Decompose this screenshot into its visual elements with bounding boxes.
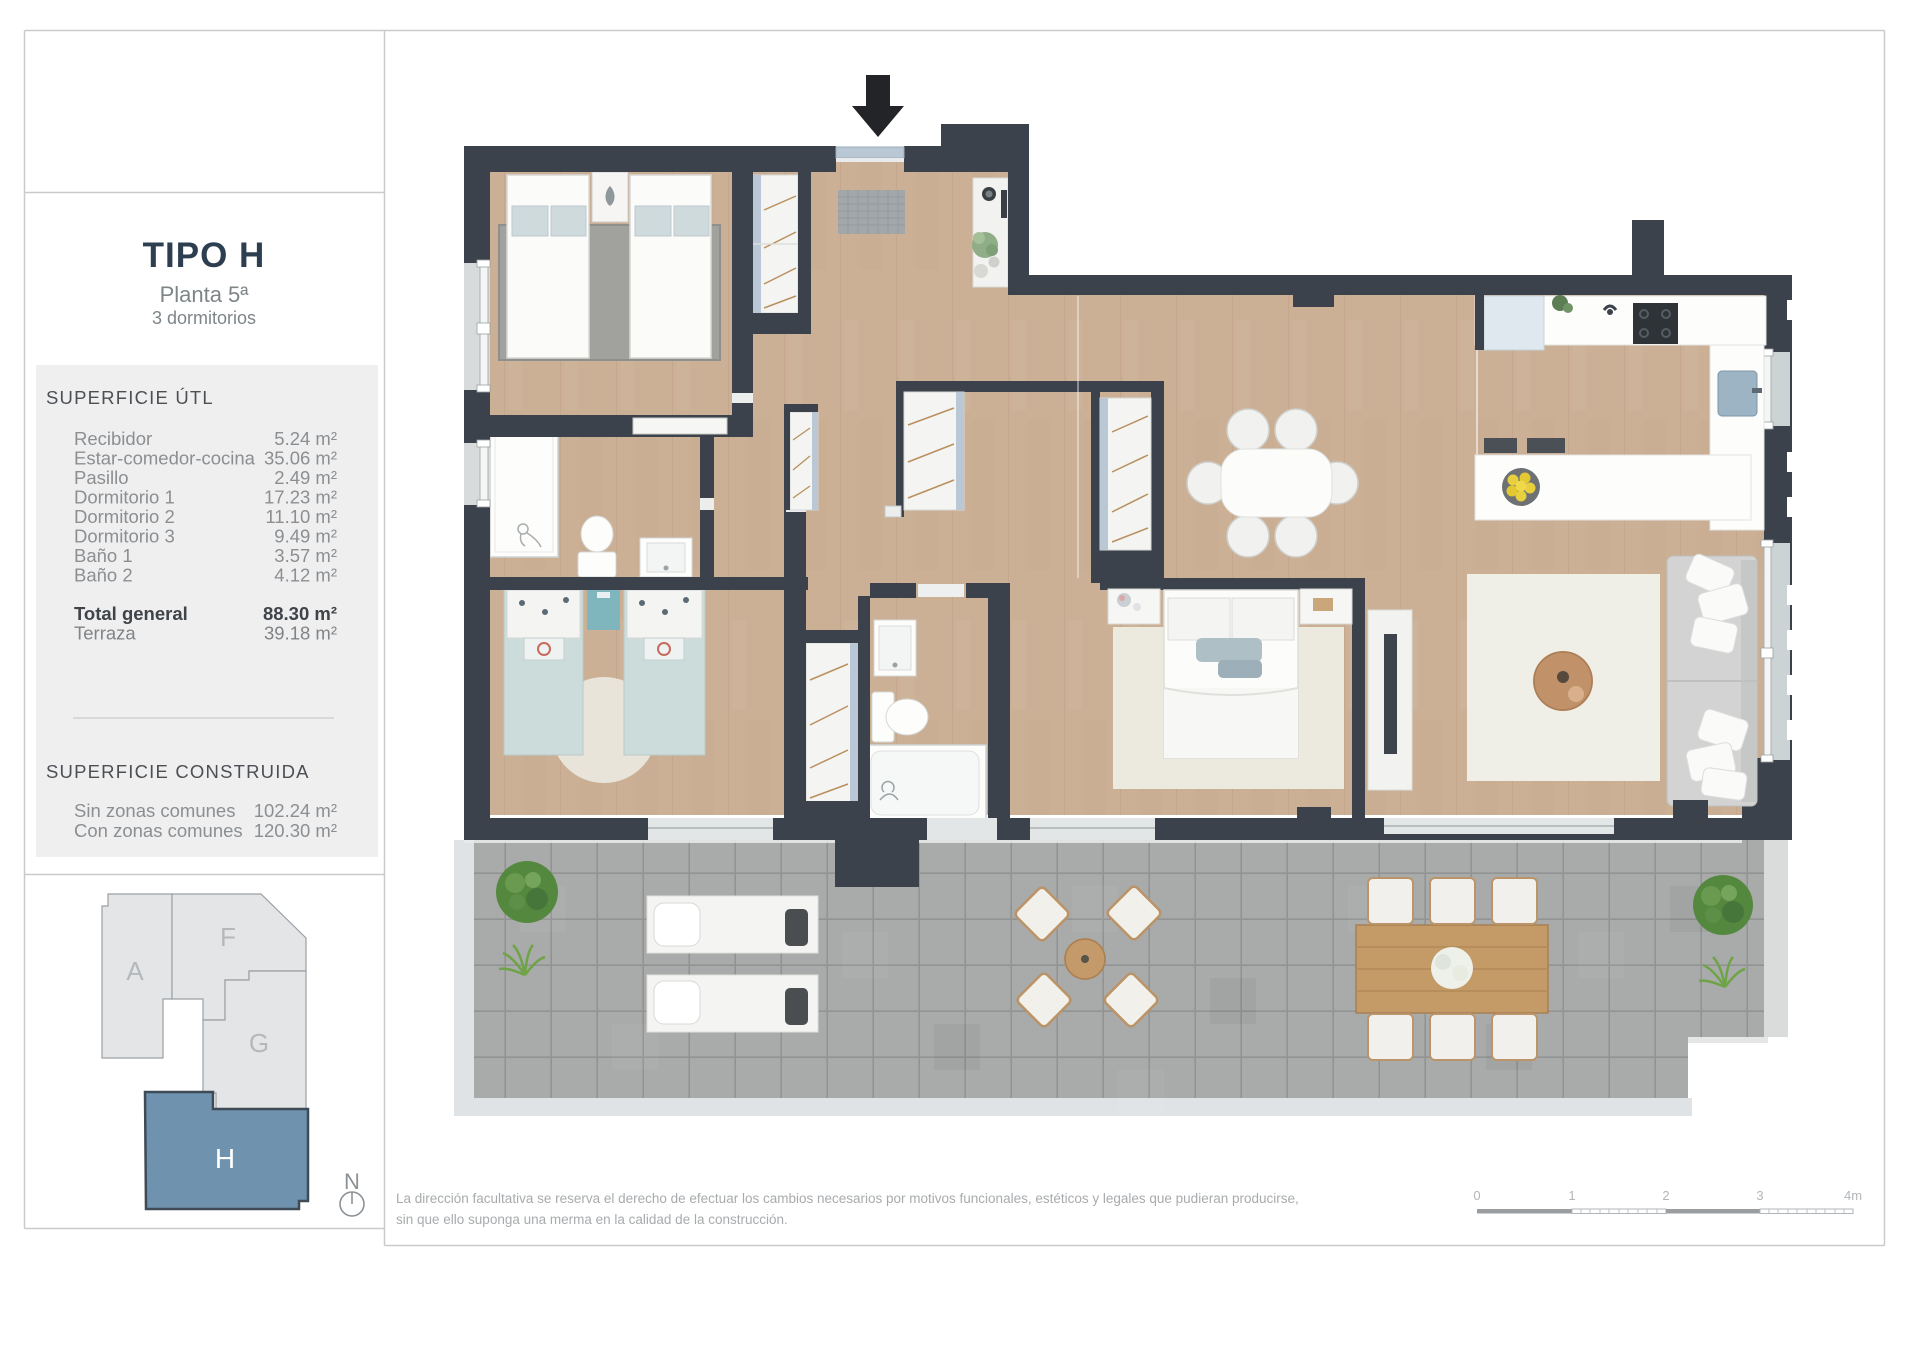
svg-text:4.12 m²: 4.12 m² [274, 565, 337, 586]
svg-text:F: F [220, 922, 236, 952]
svg-text:35.06 m²: 35.06 m² [264, 448, 337, 469]
svg-text:Pasillo: Pasillo [74, 467, 129, 488]
svg-text:3.57 m²: 3.57 m² [274, 545, 337, 566]
svg-text:17.23 m²: 17.23 m² [264, 487, 337, 508]
svg-text:SUPERFICIE ÚTL: SUPERFICIE ÚTL [46, 387, 214, 408]
svg-text:sin que ello suponga una merma: sin que ello suponga una merma en la cal… [396, 1212, 788, 1227]
svg-text:Estar-comedor-cocina: Estar-comedor-cocina [74, 448, 256, 469]
svg-text:120.30 m²: 120.30 m² [254, 820, 337, 841]
svg-text:Terraza: Terraza [74, 623, 136, 644]
svg-text:88.30 m²: 88.30 m² [263, 603, 337, 624]
svg-text:4m: 4m [1844, 1188, 1862, 1203]
svg-text:Baño 1: Baño 1 [74, 545, 133, 566]
svg-text:11.10 m²: 11.10 m² [265, 506, 337, 527]
svg-text:9.49 m²: 9.49 m² [274, 526, 337, 547]
svg-text:N: N [344, 1169, 360, 1194]
svg-text:1: 1 [1568, 1188, 1575, 1203]
svg-text:Dormitorio 2: Dormitorio 2 [74, 506, 175, 527]
svg-text:G: G [249, 1028, 269, 1058]
svg-text:A: A [126, 956, 144, 986]
svg-text:Dormitorio 1: Dormitorio 1 [74, 487, 175, 508]
svg-text:Baño 2: Baño 2 [74, 565, 133, 586]
svg-text:Sin zonas comunes: Sin zonas comunes [74, 800, 235, 821]
svg-text:SUPERFICIE CONSTRUIDA: SUPERFICIE CONSTRUIDA [46, 761, 310, 782]
svg-text:39.18 m²: 39.18 m² [264, 623, 337, 644]
svg-text:Con zonas comunes: Con zonas comunes [74, 820, 243, 841]
svg-text:2.49 m²: 2.49 m² [274, 467, 337, 488]
svg-text:Dormitorio 3: Dormitorio 3 [74, 526, 175, 547]
svg-text:3: 3 [1756, 1188, 1763, 1203]
svg-text:3 dormitorios: 3 dormitorios [152, 308, 256, 328]
svg-text:Recibidor: Recibidor [74, 428, 152, 449]
svg-text:2: 2 [1662, 1188, 1669, 1203]
svg-text:5.24 m²: 5.24 m² [274, 428, 337, 449]
svg-text:La dirección facultativa se re: La dirección facultativa se reserva el d… [396, 1191, 1299, 1206]
svg-text:0: 0 [1473, 1188, 1480, 1203]
svg-text:Planta 5ª: Planta 5ª [160, 282, 250, 307]
svg-text:TIPO H: TIPO H [143, 236, 266, 275]
svg-text:H: H [215, 1143, 235, 1174]
svg-text:Total general: Total general [74, 603, 188, 624]
svg-text:102.24 m²: 102.24 m² [254, 800, 337, 821]
